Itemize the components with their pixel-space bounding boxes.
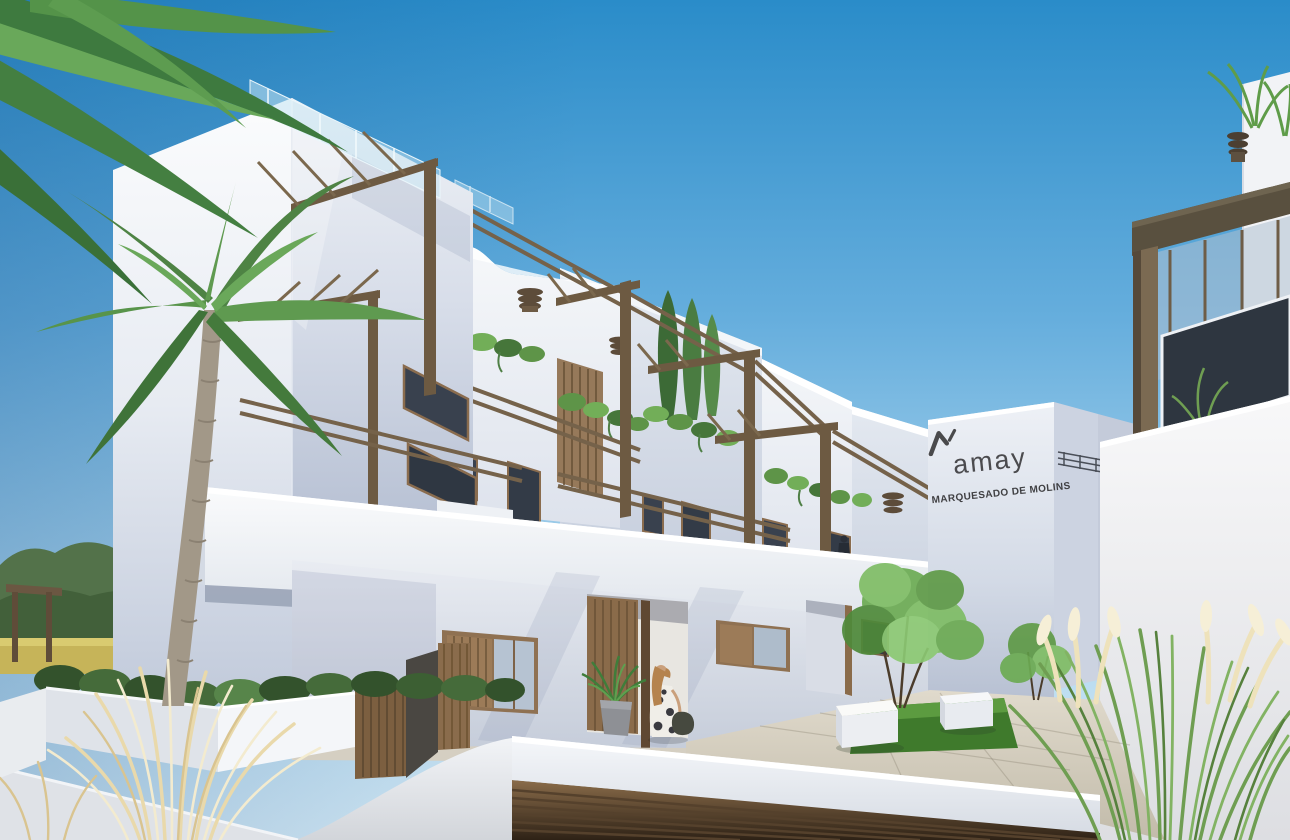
architectural-render: amay MARQUESADO DE MOLINS (0, 0, 1290, 840)
cube-bench-1 (836, 700, 904, 754)
scene-artwork (0, 0, 1290, 840)
cube-bench-2 (940, 692, 996, 735)
facade-door-2 (806, 600, 852, 696)
building-sign: amay MARQUESADO DE MOLINS (924, 418, 1055, 507)
facade-window-2 (716, 620, 790, 672)
